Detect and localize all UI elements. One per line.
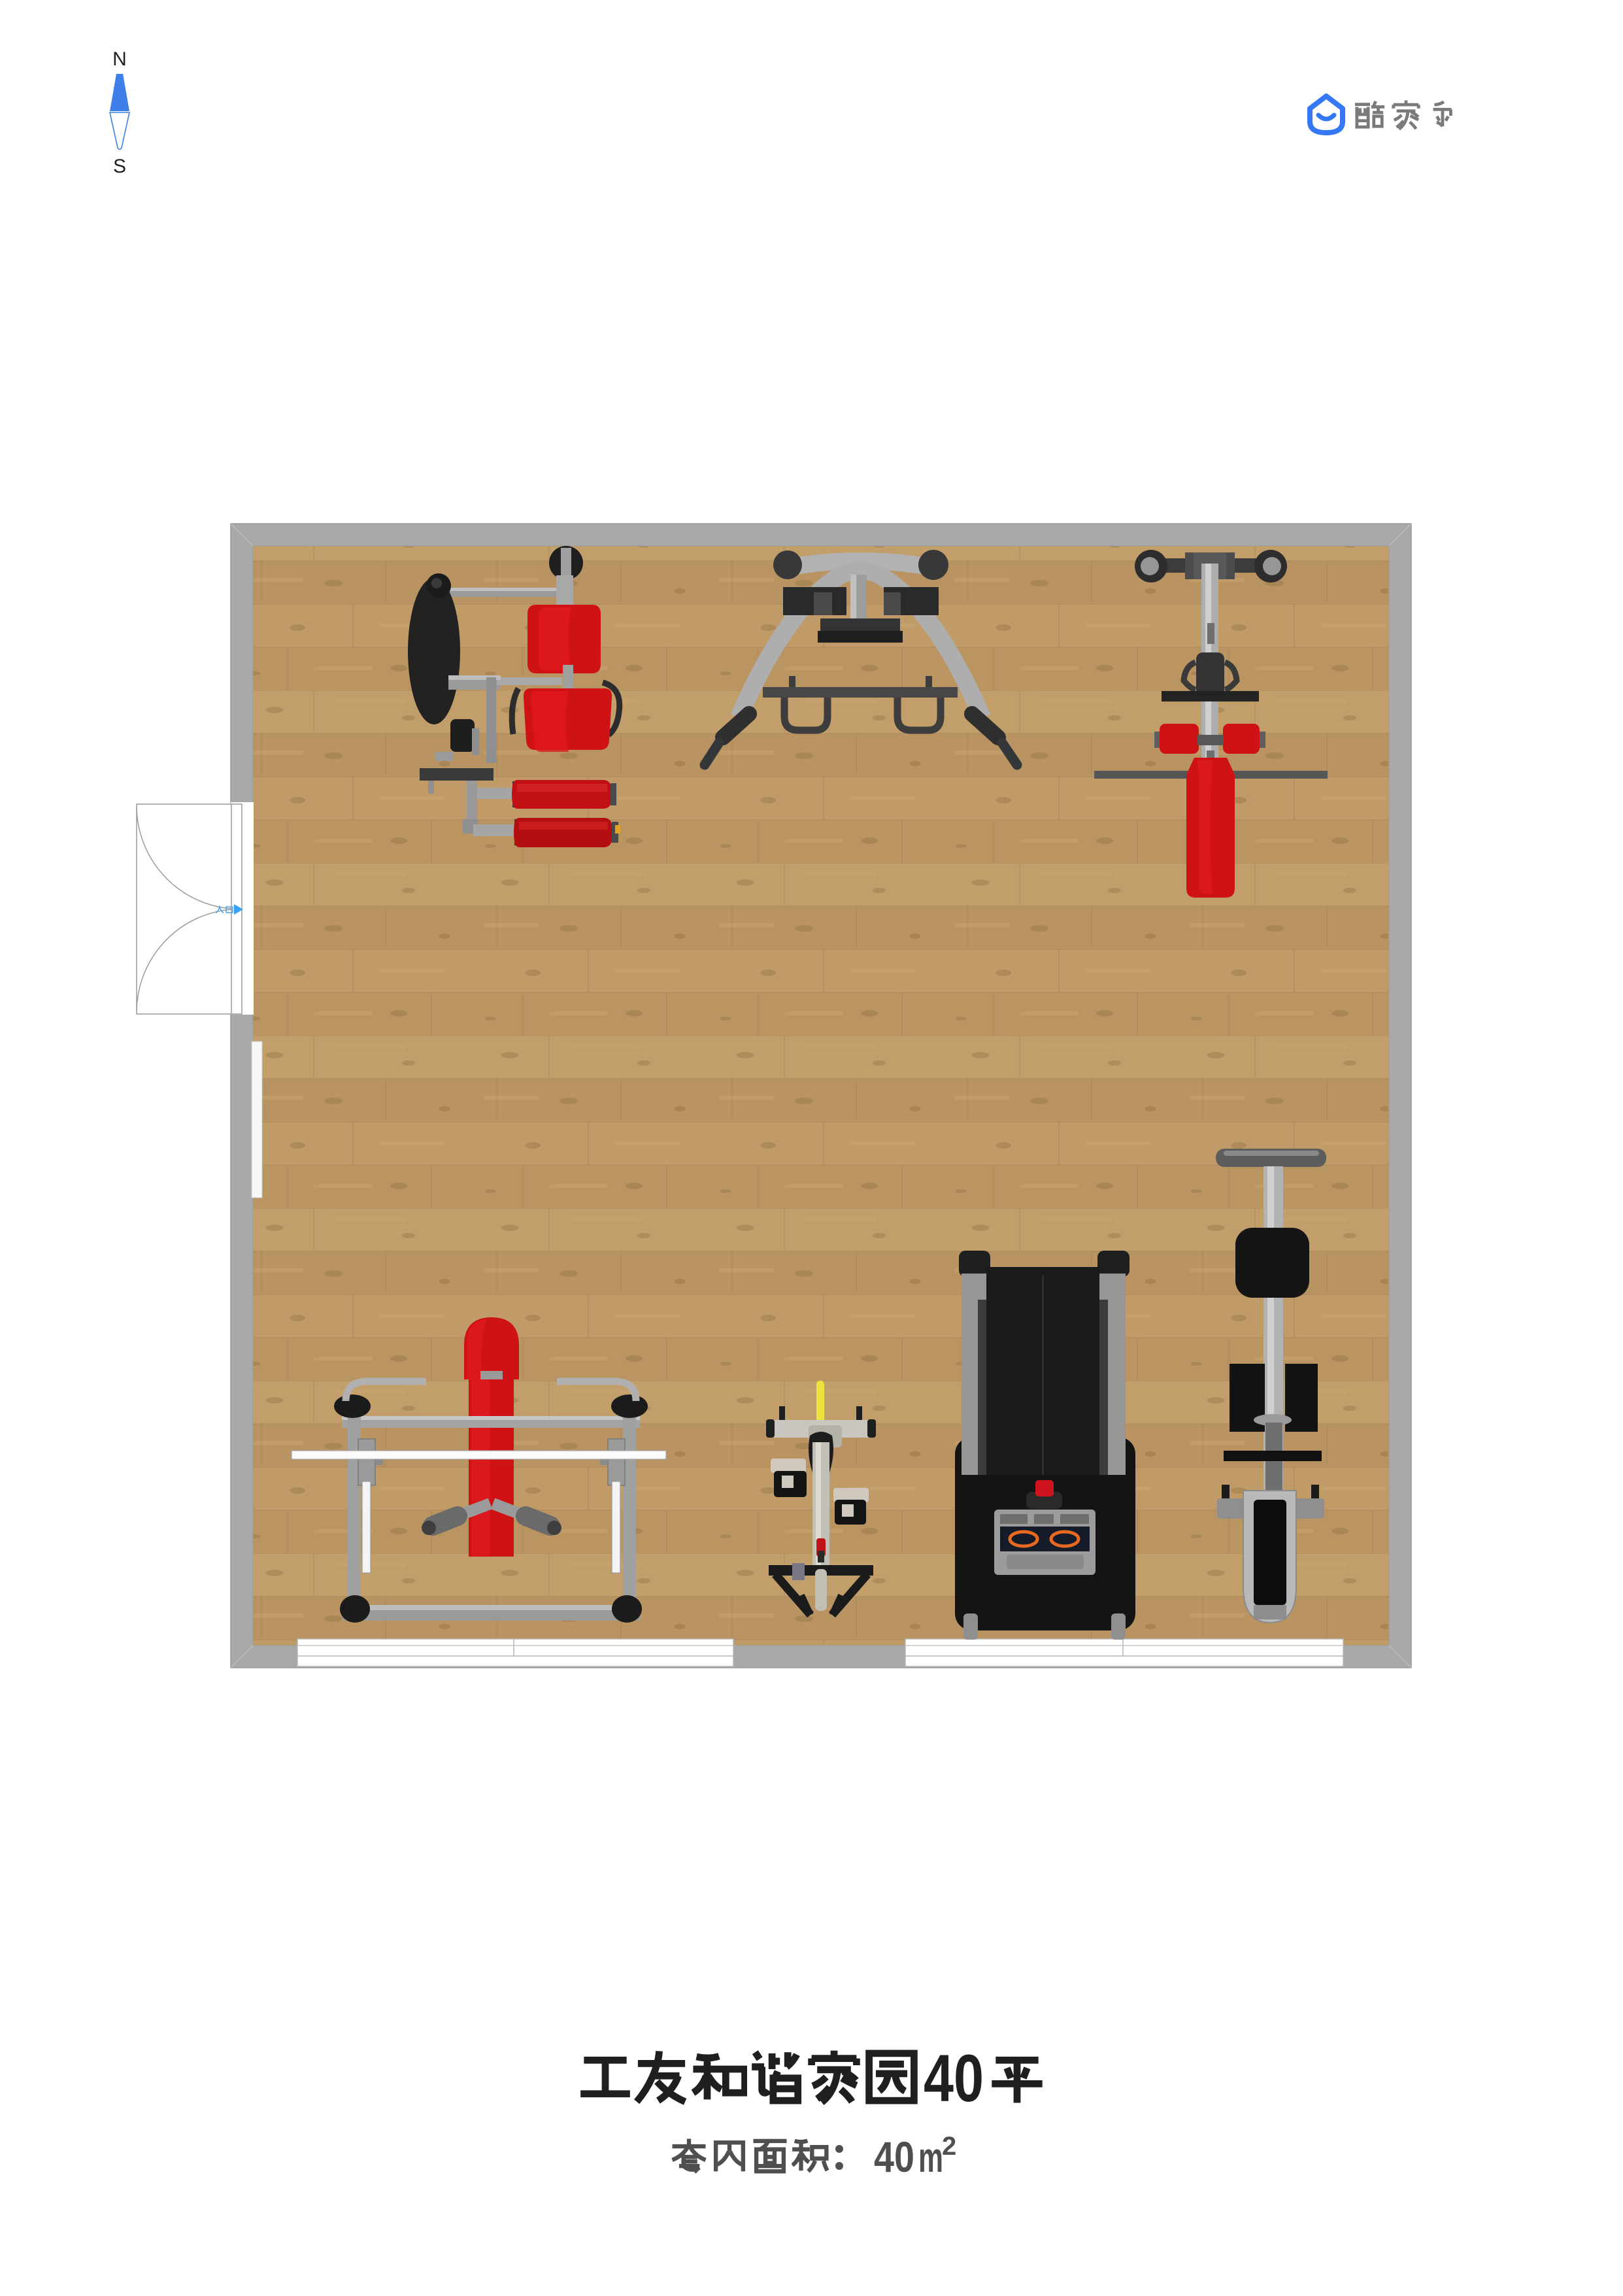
svg-text:m: m — [918, 2134, 943, 2181]
svg-text:N: N — [112, 48, 127, 70]
svg-text:40: 40 — [924, 2041, 984, 2116]
svg-text:S: S — [113, 156, 126, 177]
svg-text:2: 2 — [942, 2132, 956, 2161]
svg-text:40: 40 — [874, 2133, 914, 2181]
